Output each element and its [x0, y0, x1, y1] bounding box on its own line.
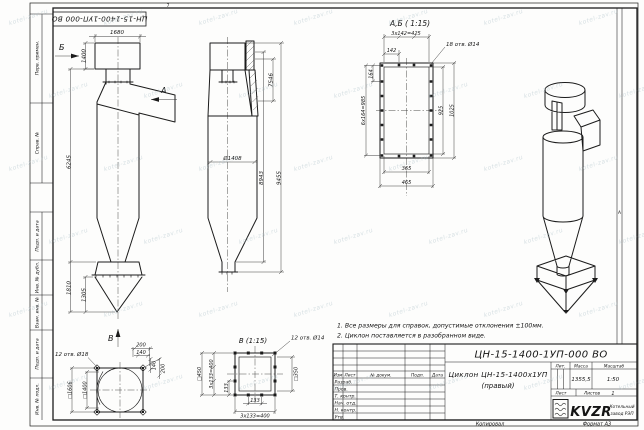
front-outline — [92, 43, 175, 312]
row-utv: Утв. — [335, 415, 345, 421]
designation: ЦН-15-1400-1УП-000 ВО — [474, 350, 607, 361]
header-masshtab: Масштаб — [604, 363, 625, 369]
margin-grid — [30, 14, 53, 420]
logo-text: KVZR — [570, 405, 612, 420]
dim-1025: 1025 — [450, 104, 456, 117]
front-dimension-lines — [68, 34, 146, 314]
part-name: Циклон ЦН-15-1400х1УП — [448, 370, 547, 379]
dim-outer-1606: □1606 — [68, 381, 74, 398]
base-detail: 12 отв. Ø18 □1606 □1400 200 140 140 200 — [55, 343, 167, 419]
base-holes-label: 12 отв. Ø18 — [55, 351, 89, 358]
margin-column: Перв. примен. Справ. № Подп. и дата Инв.… — [35, 41, 41, 415]
margin-label-inv-dubl: Инв. № дубл. — [35, 262, 41, 293]
drawing-sheet: 7 А Копировал Формат А3 ЦН-15-1400-1УП-0… — [0, 0, 644, 430]
zone-letter-right: А — [618, 210, 621, 216]
flange-detail: А,Б ( 1:15) 3х142=425 142 18 отв. Ø14 16… — [361, 19, 480, 196]
outlet-detail-title: В (1:15) — [239, 337, 267, 345]
side-view: Ø1408 7546 8943 9455 — [208, 37, 284, 292]
header-izm: Изм — [334, 372, 343, 378]
sheet-label: Лист — [555, 391, 567, 397]
company-line-1: Котельный — [609, 404, 634, 410]
header-list: Лист — [344, 372, 356, 378]
dim-1680: 1680 — [110, 30, 124, 36]
iso-outline — [537, 83, 600, 313]
row-prov: Пров. — [335, 387, 348, 393]
front-flange-ticks — [96, 81, 138, 278]
dim-inner-350: □350 — [294, 367, 300, 381]
sheets-label: Листов — [583, 391, 601, 397]
row-nkontr: Н. контр. — [335, 408, 357, 414]
dim-3x133-bottom: 3х133=400 — [240, 414, 269, 420]
row-nachotd: Нач. отд. — [335, 401, 357, 407]
flange-holes-label: 18 отв. Ø14 — [446, 41, 480, 48]
dim-9455: 9455 — [277, 171, 283, 185]
flange-detail-title: А,Б ( 1:15) — [389, 19, 430, 28]
margin-label-perv: Перв. примен. — [35, 41, 41, 76]
dim-7546: 7546 — [269, 73, 275, 87]
isometric-view — [534, 83, 600, 315]
section-label-a: А — [160, 86, 166, 95]
header-doc: № докум. — [369, 372, 391, 378]
header-data: Дата — [431, 372, 443, 378]
outlet-detail: В (1:15) 12 отв. Ø14 □450 3х133=400 133 … — [197, 335, 325, 420]
margin-label-podp2: Подп. и дата — [35, 338, 41, 369]
section-label-v: В — [108, 334, 114, 343]
notes: 1. Все размеры для справок, допустимые о… — [337, 323, 544, 340]
format-label: Формат А3 — [583, 421, 611, 427]
row-razrab: Разраб. — [335, 380, 353, 386]
base-centerlines — [90, 362, 150, 418]
header-lit: Лит. — [555, 363, 566, 369]
blueprint-svg: 7 А Копировал Формат А3 ЦН-15-1400-1УП-0… — [0, 0, 644, 430]
side-hatch-lines — [246, 41, 258, 110]
logo-wave-lines — [555, 403, 566, 416]
margin-label-inv-podl: Инв. № подл. — [35, 383, 41, 415]
part-name-2: (правый) — [482, 382, 515, 390]
flange-centerlines — [376, 58, 441, 196]
kvzr-logo: KVZR Котельный завод РЭП — [553, 400, 635, 421]
section-label-b: Б — [59, 43, 65, 52]
company-line-2: завод РЭП — [610, 411, 634, 417]
dim-inner-1400: □1400 — [83, 381, 89, 398]
dim-3x142: 3х142=425 — [391, 31, 420, 37]
dim-outer-450: □450 — [197, 367, 203, 381]
note-line-1: 1. Все размеры для справок, допустимые о… — [337, 323, 544, 330]
title-block: ЦН-15-1400-1УП-000 ВО Циклон ЦН-15-1400х… — [333, 344, 637, 421]
scale-value: 1:50 — [607, 377, 620, 383]
sheet-border — [30, 3, 638, 426]
base-scroll-arc — [97, 372, 103, 405]
dim-925: 925 — [439, 106, 445, 116]
dim-1810: 1810 — [67, 281, 73, 295]
front-view: Б А В 1680 1400 6245 1810 1305 — [55, 30, 177, 347]
dim-200-right: 200 — [161, 364, 167, 374]
dim-6245: 6245 — [67, 155, 73, 169]
copied-label: Копировал — [476, 421, 505, 427]
dim-142: 142 — [387, 48, 397, 54]
zone-number-top: 7 — [167, 3, 170, 9]
sheets-value: 1 — [611, 391, 614, 397]
top-stamp-designation: ЦН-15-1400-1УП-000 ВО — [51, 14, 147, 23]
dim-140-right: 140 — [152, 361, 158, 371]
dim-465: 465 — [402, 180, 412, 186]
frame: 7 А Копировал Формат А3 ЦН-15-1400-1УП-0… — [30, 3, 638, 427]
dim-3x133-left: 3х133=400 — [209, 359, 215, 388]
zone-strip — [617, 8, 622, 344]
dim-133-bottom: 133 — [250, 398, 260, 404]
header-podp: Подп. — [411, 372, 424, 378]
dim-140-top: 140 — [136, 350, 146, 356]
header-massa: Масса — [574, 363, 588, 369]
dim-133-left: 133 — [224, 383, 230, 393]
dim-200-top: 200 — [136, 343, 146, 349]
massa-value: 1355,5 — [571, 377, 591, 383]
margin-label-sprav: Справ. № — [35, 132, 41, 155]
outlet-holes-label: 12 отв. Ø14 — [291, 335, 325, 342]
side-flange-ticks — [222, 81, 234, 275]
dim-8943: 8943 — [259, 171, 265, 185]
dim-d1408: Ø1408 — [222, 155, 242, 162]
dim-1400: 1400 — [82, 49, 88, 63]
dim-365: 365 — [402, 166, 412, 172]
row-tkontr: Т. контр. — [335, 394, 356, 400]
dim-6x164: 6х164=985 — [361, 96, 367, 125]
note-line-2: 2. Циклон поставляется в разобранном вид… — [337, 332, 486, 340]
margin-label-vzam: Взам. инв. № — [35, 297, 41, 328]
dim-164: 164 — [369, 69, 375, 79]
dim-1305: 1305 — [82, 288, 88, 302]
margin-label-podp1: Подп. и дата — [35, 220, 41, 251]
